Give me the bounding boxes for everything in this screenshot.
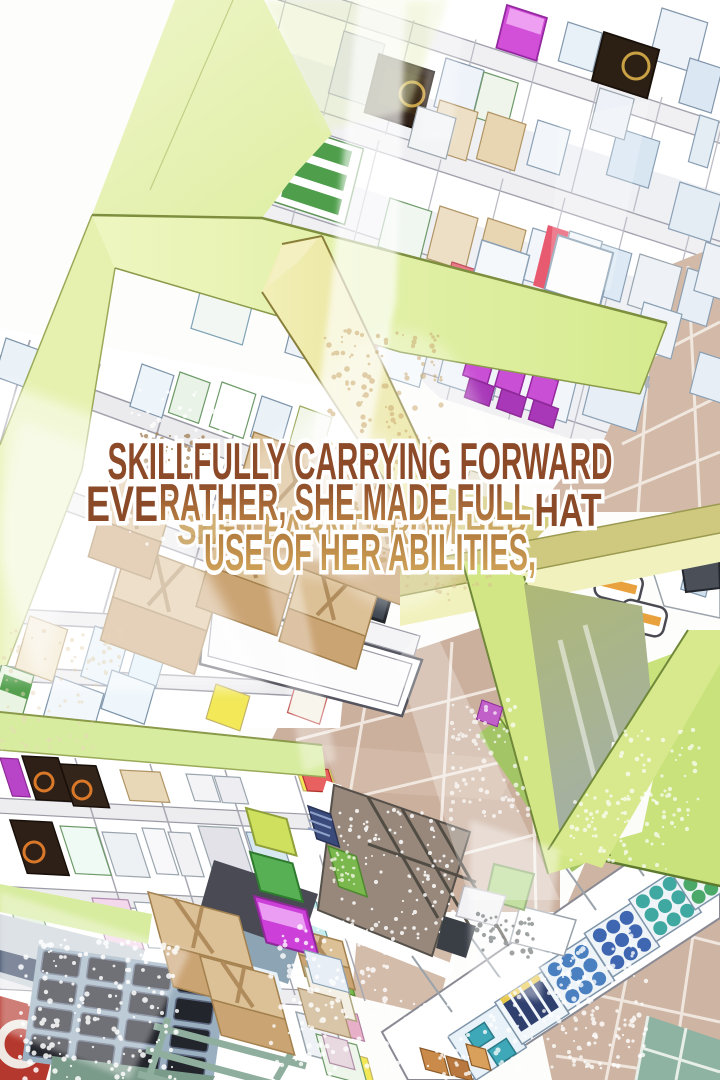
svg-text:EVE: EVE: [86, 476, 158, 532]
svg-text:HAT: HAT: [535, 484, 602, 536]
svg-text:USE OF HER ABILITIES,: USE OF HER ABILITIES,: [204, 524, 536, 582]
